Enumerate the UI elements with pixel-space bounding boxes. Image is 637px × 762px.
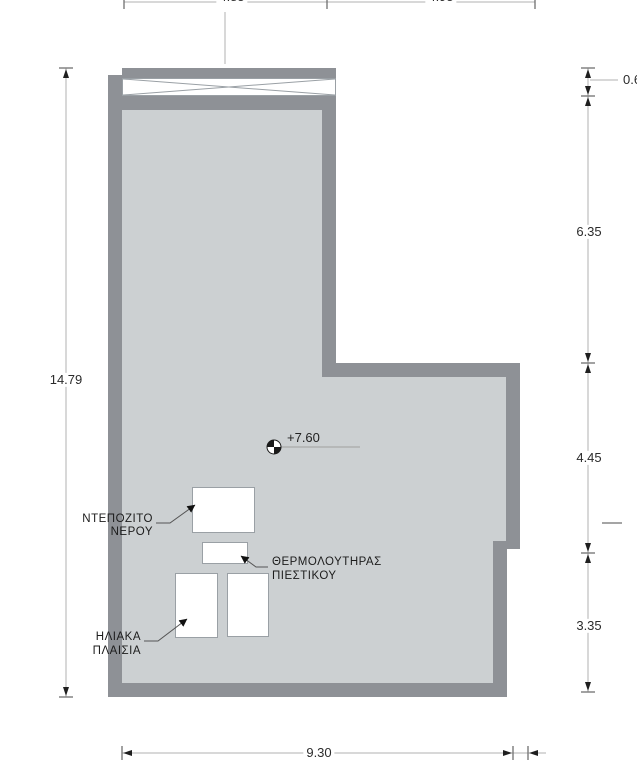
label-pressure-heater-line1: ΘΕΡΜΟΛΟΥΤΗΡΑΣ [272,557,382,569]
dim-right-upper: 6.35 [573,225,604,239]
wall-top [122,68,336,78]
wall-right-upper [322,68,336,377]
wall-left [108,75,122,697]
dim-right-lower: 3.35 [573,619,604,633]
level-value: +7.60 [287,431,320,444]
hatch-band [123,79,336,96]
solar-panel-right-rect [228,574,269,637]
label-pressure-heater-line2: ΠΙΕΣΤΙΚΟΥ [272,571,337,583]
dim-top-right-clipped: 4.95 [425,0,456,4]
label-water-tank-line2: ΝΕΡΟΥ [111,527,153,539]
wall-extension-top [336,363,520,377]
label-solar-panels-line2: ΠΛΑΙΣΙΑ [93,646,141,658]
dim-top-left-clipped: 4.85 [216,0,247,4]
floor-plan-canvas: 14.79 6.35 4.45 3.35 9.30 0.6 4.85 4.95 … [0,0,637,762]
wall-extension-right [506,363,520,549]
right-dimension-line [581,68,622,692]
solar-panel-left-rect [176,574,218,638]
wall-bottom [108,683,507,697]
dim-right-parapet: 0.6 [621,73,637,87]
wall-right-lower [493,541,507,697]
dim-right-middle: 4.45 [573,451,604,465]
dim-left-height: 14.79 [47,373,86,387]
pressure-heater-rect [203,543,248,564]
label-solar-panels-line1: ΗΛΙΑΚΑ [96,632,141,644]
dim-bottom-width: 9.30 [303,746,334,760]
top-dimension-line [124,0,535,64]
label-water-tank-line1: ΝΤΕΠΟΖΙΤΟ [82,514,153,526]
water-tank-rect [193,488,255,533]
wall-below-hatch [108,96,336,110]
